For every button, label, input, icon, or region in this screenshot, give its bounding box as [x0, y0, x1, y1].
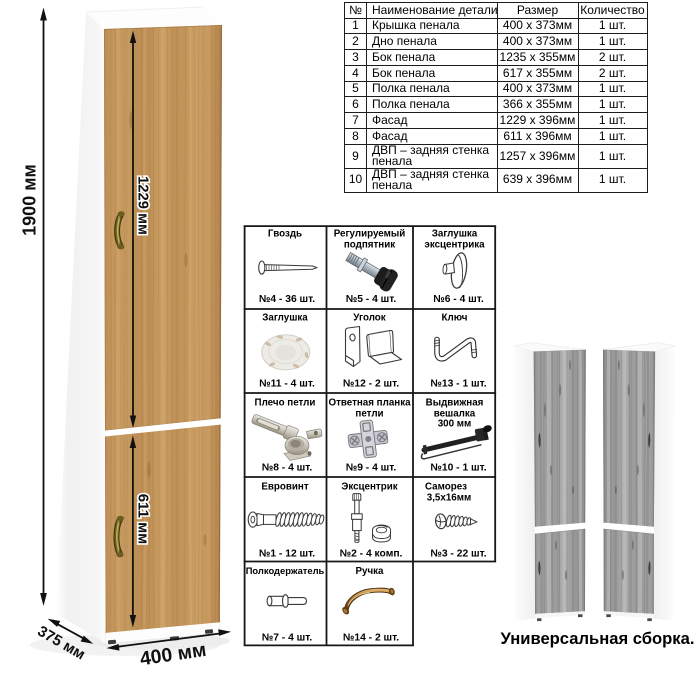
svg-text:Саморез: Саморез: [425, 481, 467, 492]
svg-text:№14 - 2 шт.: №14 - 2 шт.: [343, 633, 399, 644]
svg-text:Гвоздь: Гвоздь: [268, 228, 302, 239]
svg-text:№6 - 4 шт.: №6 - 4 шт.: [433, 294, 484, 305]
svg-text:№9 - 4 шт.: №9 - 4 шт.: [346, 463, 397, 474]
svg-text:Эксцентрик: Эксцентрик: [341, 481, 397, 492]
svg-text:№13 - 1 шт.: №13 - 1 шт.: [430, 379, 486, 390]
svg-text:3,5х16мм: 3,5х16мм: [427, 492, 471, 503]
svg-text:№12 - 2 шт.: №12 - 2 шт.: [343, 379, 399, 390]
svg-text:№8 - 4 шт.: №8 - 4 шт.: [262, 463, 313, 474]
svg-text:Ручка: Ручка: [355, 566, 384, 577]
svg-text:петли: петли: [355, 408, 383, 419]
svg-text:Ключ: Ключ: [442, 312, 468, 323]
svg-text:1900 мм: 1900 мм: [20, 164, 40, 236]
svg-text:Заглушка: Заглушка: [432, 228, 478, 239]
svg-text:№10 - 1 шт.: №10 - 1 шт.: [430, 463, 486, 474]
svg-text:1229 мм: 1229 мм: [135, 176, 151, 235]
svg-text:Уголок: Уголок: [353, 312, 385, 323]
svg-text:эксцентрика: эксцентрика: [424, 239, 485, 250]
svg-text:№3 - 22 шт.: №3 - 22 шт.: [430, 549, 486, 560]
svg-text:подпятник: подпятник: [344, 239, 395, 250]
svg-text:Выдвижная: Выдвижная: [426, 397, 484, 408]
svg-text:611 мм: 611 мм: [135, 494, 152, 545]
svg-text:Евровинт: Евровинт: [261, 481, 308, 492]
svg-text:300 мм: 300 мм: [438, 418, 472, 429]
svg-text:№4 - 36 шт.: №4 - 36 шт.: [259, 294, 315, 305]
svg-text:Полкодержатель: Полкодержатель: [246, 565, 325, 576]
svg-text:№7 - 4 шт.: №7 - 4 шт.: [262, 633, 313, 644]
svg-text:№2 - 4 комп.: №2 - 4 комп.: [340, 549, 403, 560]
svg-text:Ответная планка: Ответная планка: [328, 397, 411, 408]
svg-text:Регулируемый: Регулируемый: [334, 228, 406, 239]
svg-text:№5 - 4 шт.: №5 - 4 шт.: [346, 294, 397, 305]
svg-text:№11 - 4 шт.: №11 - 4 шт.: [259, 379, 315, 390]
svg-text:№1 - 12 шт.: №1 - 12 шт.: [259, 549, 315, 560]
svg-text:Плечо петли: Плечо петли: [255, 397, 316, 408]
svg-text:Заглушка: Заглушка: [262, 312, 308, 323]
